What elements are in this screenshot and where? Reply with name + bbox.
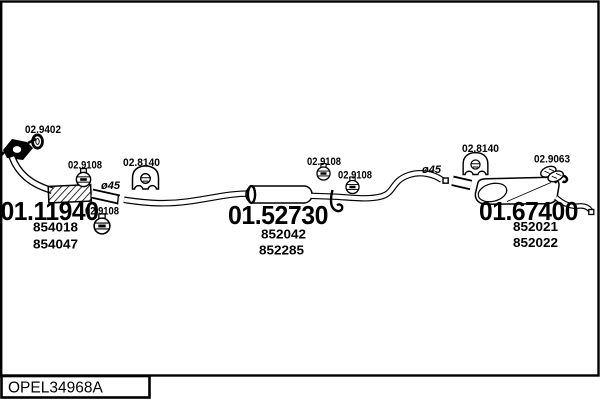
- mount-code-label: 02.8140: [123, 157, 160, 169]
- front-pipe-oe-number: 854018: [33, 220, 78, 235]
- diameter-annotation: ø45: [101, 180, 121, 192]
- mount-code-label: 02.8140: [462, 143, 499, 155]
- diameter-annotation: ø45: [422, 164, 442, 176]
- hanger-code-label: 02.9063: [534, 154, 570, 166]
- clamp-code-label: 02.9108: [68, 160, 102, 172]
- clamp-code-label: 02.9108: [85, 206, 119, 218]
- gasket-code-label: 02.9402: [25, 124, 61, 136]
- rubber-mount-icon: [133, 166, 159, 189]
- centre-silencer-oe-number: 852042: [261, 227, 306, 242]
- front-pipe-oe-number: 854047: [33, 237, 78, 252]
- exhaust-diagram-page: 02.9402 02.9108 02.8140 ø45 01.11940 02.…: [0, 0, 600, 400]
- footer-code-label: OPEL34968A: [8, 380, 103, 397]
- exhaust-diagram: 02.9402 02.9108 02.8140 ø45 01.11940 02.…: [0, 0, 600, 400]
- rear-silencer-oe-number: 852021: [513, 219, 558, 234]
- clamp-code-label: 02.9108: [307, 156, 341, 168]
- clamp-code-label: 02.9108: [338, 170, 372, 182]
- centre-silencer-oe-number: 852285: [259, 243, 304, 258]
- centre-silencer-code: 01.52730: [228, 200, 328, 230]
- rubber-mount-icon: [463, 153, 488, 175]
- rear-silencer-oe-number: 852022: [513, 235, 558, 250]
